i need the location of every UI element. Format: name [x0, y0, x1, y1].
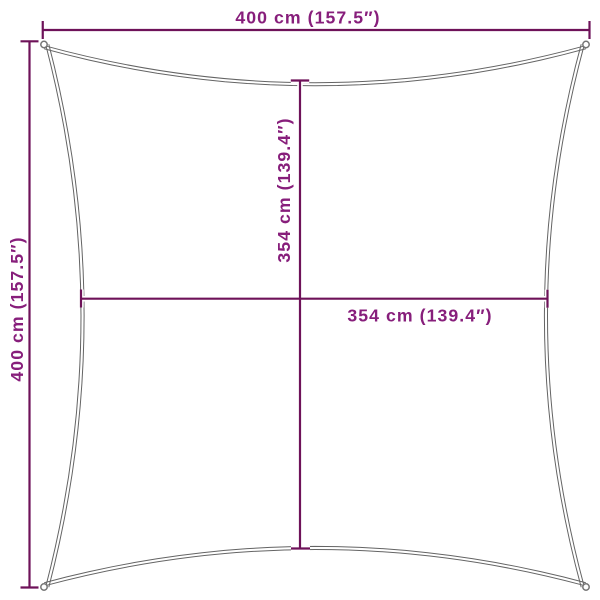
svg-text:400 cm (157.5″): 400 cm (157.5″): [7, 236, 27, 381]
svg-text:400 cm (157.5″): 400 cm (157.5″): [235, 7, 380, 27]
svg-text:354 cm (139.4″): 354 cm (139.4″): [274, 117, 294, 262]
svg-text:354 cm (139.4″): 354 cm (139.4″): [347, 306, 492, 326]
